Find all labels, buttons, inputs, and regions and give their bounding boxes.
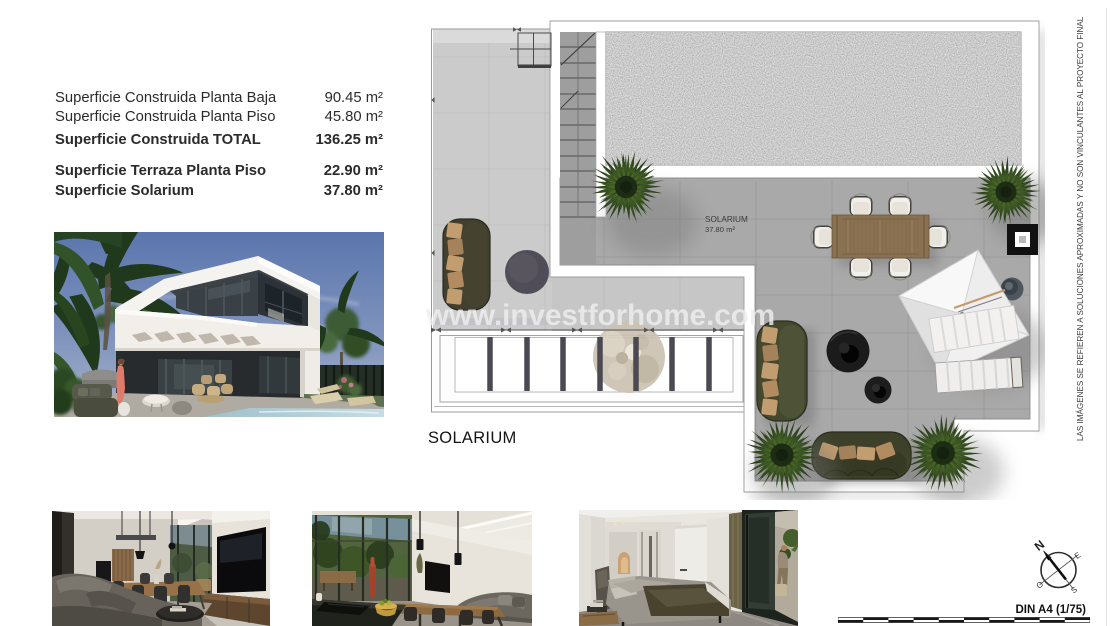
svg-text:SOLARIUM: SOLARIUM [705,215,748,224]
svg-text:S: S [1069,585,1079,595]
svg-text:37.80 m²: 37.80 m² [705,225,735,234]
svg-text:E: E [1073,550,1083,560]
svg-text:N: N [1032,537,1047,553]
